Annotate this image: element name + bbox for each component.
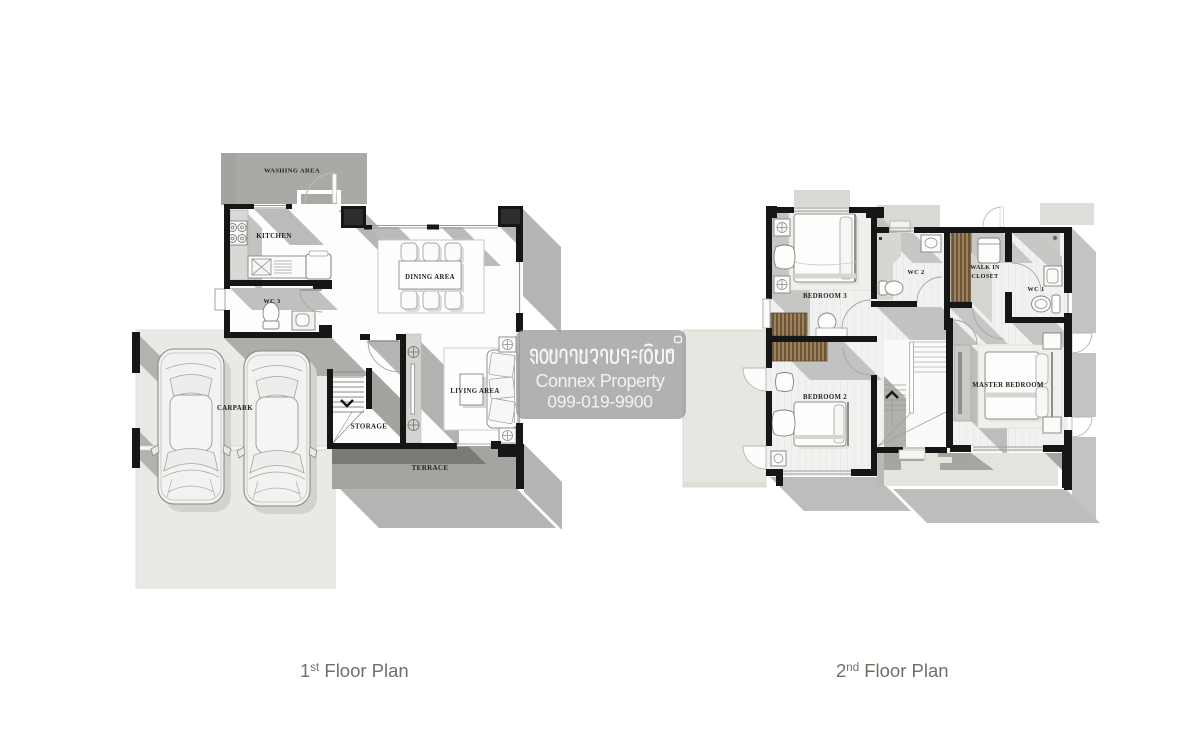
svg-text:WC 1: WC 1 [1027, 286, 1044, 293]
svg-text:099-019-9900: 099-019-9900 [547, 392, 653, 412]
svg-text:TERRACE: TERRACE [412, 464, 449, 472]
svg-text:KITCHEN: KITCHEN [256, 232, 292, 240]
svg-text:WC 3: WC 3 [263, 298, 280, 305]
svg-text:BEDROOM 2: BEDROOM 2 [803, 394, 847, 401]
svg-text:LIVING AREA: LIVING AREA [450, 388, 499, 395]
svg-text:Connex Property: Connex Property [535, 371, 664, 391]
svg-text:WASHING AREA: WASHING AREA [264, 168, 320, 175]
svg-text:STORAGE: STORAGE [351, 423, 388, 431]
svg-text:CARPARK: CARPARK [217, 405, 253, 412]
svg-text:BEDROOM 3: BEDROOM 3 [803, 293, 847, 300]
svg-text:WC 2: WC 2 [907, 269, 924, 276]
svg-text:DINING AREA: DINING AREA [405, 274, 455, 281]
svg-text:MASTER BEDROOM: MASTER BEDROOM [972, 382, 1044, 389]
svg-text:WALK IN: WALK IN [970, 264, 1000, 271]
svg-text:CLOSET: CLOSET [971, 273, 999, 280]
